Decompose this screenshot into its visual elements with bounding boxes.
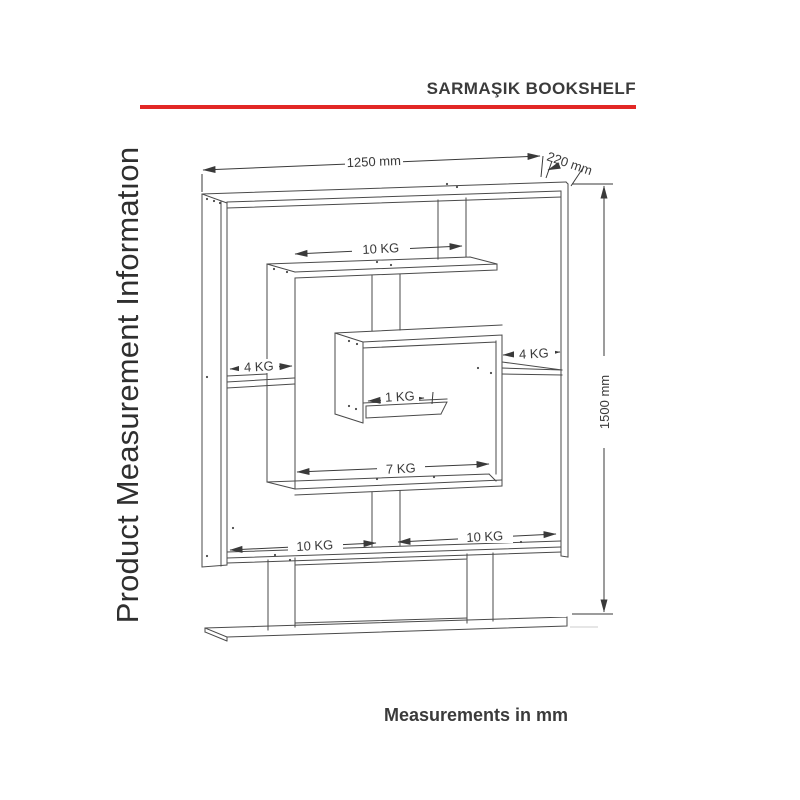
dim-right-shelf: 4 KG [503,345,560,362]
dim-top-shelf: 10 KG [295,240,462,257]
bottom-panel [227,541,561,563]
bottom-mid-divider [372,491,400,547]
base-plank [205,617,567,641]
dim-height-label: 1500 mm [597,375,612,429]
dim-depth: 220 mm [545,149,594,186]
top-divider [438,198,466,259]
upper-mid-divider [372,274,400,331]
dim-left-shelf: 4 KG [230,358,292,375]
right-panel [561,182,568,557]
left-small-shelf [227,374,294,388]
right-small-shelf [502,362,562,375]
dim-width-label: 1250 mm [346,153,401,170]
upper-shelf [267,257,497,278]
left-divider [267,264,295,489]
bottom-right-shelf-capacity: 10 KG [466,528,504,545]
bottom-left-shelf-capacity: 10 KG [296,537,334,554]
right-shelf-capacity: 4 KG [519,345,549,362]
bookshelf-diagram: 1250 mm 220 mm 1500 mm 10 KG 4 KG 4 KG 1… [0,0,800,800]
dim-middle-shelf: 7 KG [297,460,489,477]
left-panel [202,194,227,567]
dim-height: 1500 mm [572,184,613,614]
left-shelf-capacity: 4 KG [244,358,274,375]
dim-depth-label: 220 mm [545,149,594,178]
center-box-shelf-capacity: 1 KG [385,388,415,405]
top-shelf-capacity: 10 KG [362,240,400,257]
dim-width: 1250 mm [202,153,543,192]
middle-shelf [267,474,502,495]
footer-note: Measurements in mm [384,705,568,726]
middle-shelf-capacity: 7 KG [386,460,416,477]
top-panel [202,182,566,208]
